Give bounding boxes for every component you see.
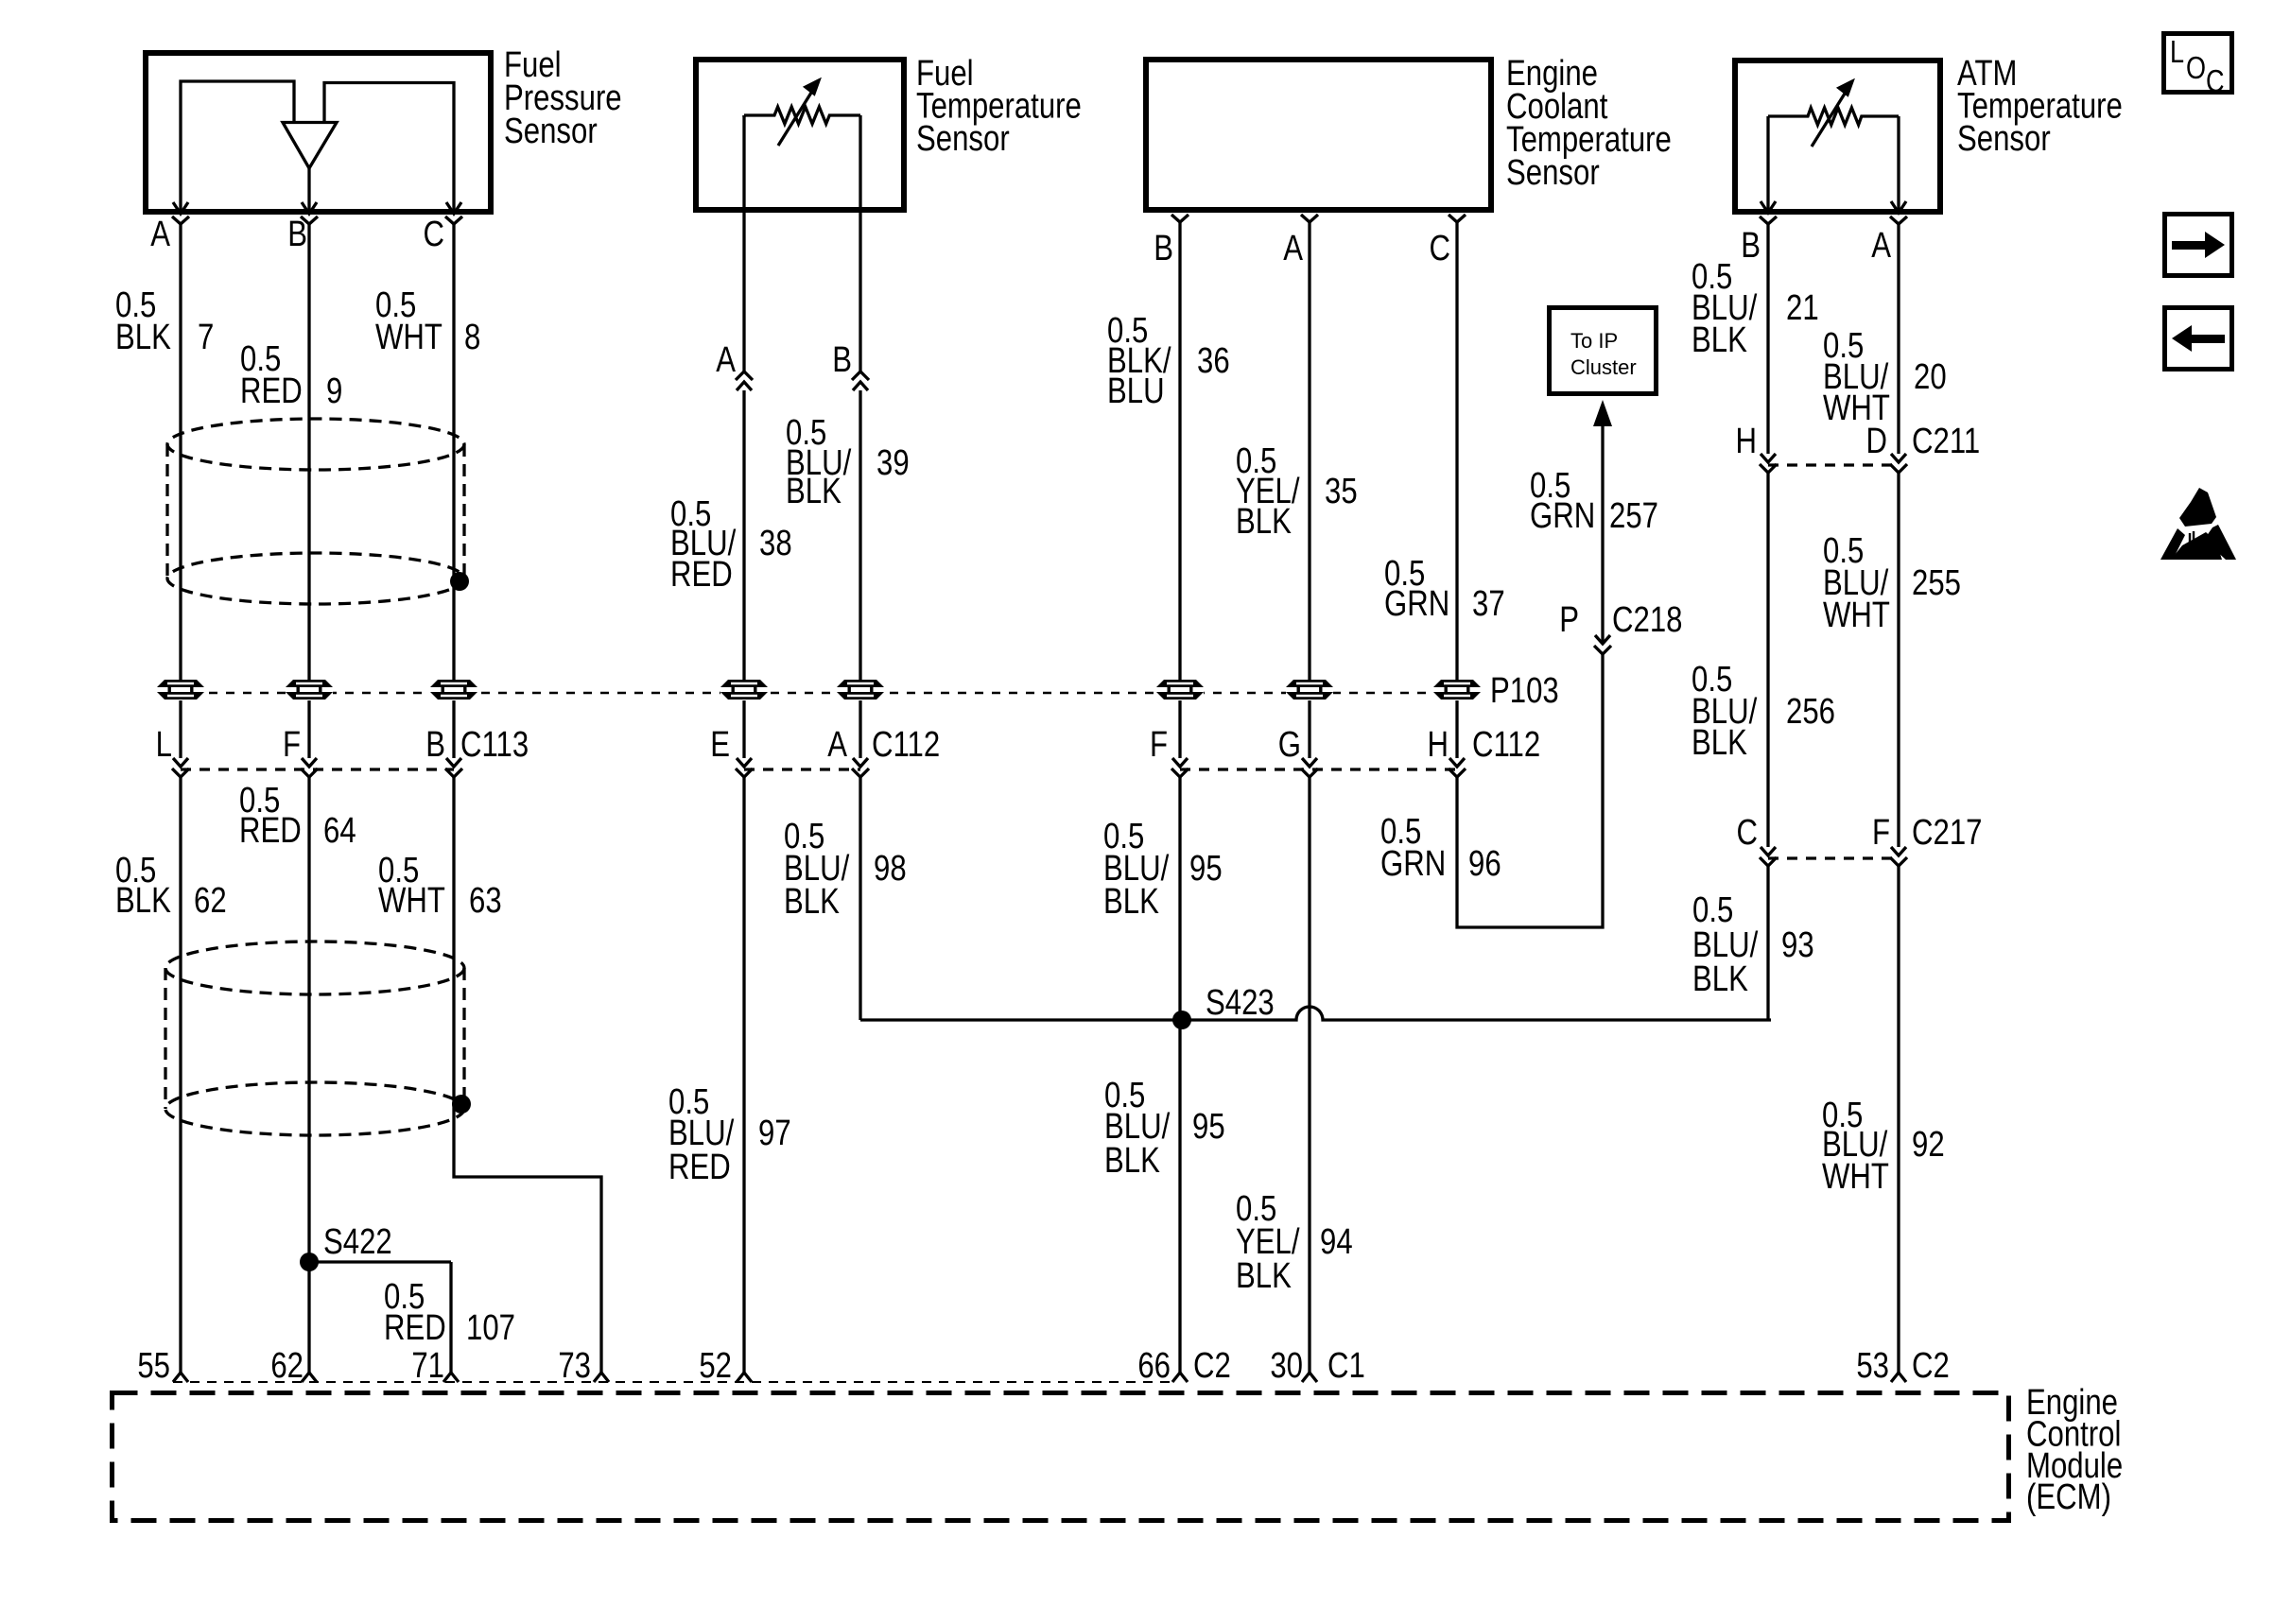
svg-text:Sensor: Sensor xyxy=(504,112,598,151)
svg-text:BLK: BLK xyxy=(1692,723,1747,763)
svg-text:64: 64 xyxy=(323,811,356,851)
svg-text:BLU: BLU xyxy=(1107,371,1165,411)
svg-text:93: 93 xyxy=(1781,925,1814,965)
svg-text:7: 7 xyxy=(198,318,214,357)
svg-text:62: 62 xyxy=(194,881,227,921)
svg-text:D: D xyxy=(1865,422,1887,461)
svg-text:Sensor: Sensor xyxy=(1506,153,1600,193)
svg-text:BLK: BLK xyxy=(1692,959,1748,999)
svg-text:F: F xyxy=(1150,725,1168,765)
svg-text:WHT: WHT xyxy=(375,318,442,357)
svg-text:A: A xyxy=(716,340,737,380)
svg-text:73: 73 xyxy=(558,1346,591,1386)
svg-text:Sensor: Sensor xyxy=(1957,119,2051,159)
svg-text:30: 30 xyxy=(1270,1346,1303,1386)
svg-text:O: O xyxy=(2186,52,2206,86)
svg-text:C: C xyxy=(423,215,444,254)
svg-text:L: L xyxy=(156,725,172,765)
svg-text:62: 62 xyxy=(270,1346,304,1386)
svg-text:A: A xyxy=(1871,226,1892,266)
svg-text:BLK: BLK xyxy=(1236,1256,1292,1296)
svg-text:0.5: 0.5 xyxy=(1692,890,1733,930)
svg-text:RED: RED xyxy=(668,1148,731,1187)
svg-text:9: 9 xyxy=(326,371,342,411)
svg-text:H: H xyxy=(1735,422,1757,461)
svg-text:E: E xyxy=(710,725,730,765)
svg-text:C218: C218 xyxy=(1612,600,1682,640)
svg-text:A: A xyxy=(150,215,171,254)
svg-text:BLK: BLK xyxy=(1692,320,1747,360)
svg-text:55: 55 xyxy=(137,1346,170,1386)
svg-text:36: 36 xyxy=(1197,341,1230,381)
svg-text:256: 256 xyxy=(1786,692,1835,732)
svg-text:B: B xyxy=(832,340,852,380)
svg-text:39: 39 xyxy=(876,443,910,483)
svg-text:63: 63 xyxy=(469,881,502,921)
svg-text:GRN: GRN xyxy=(1380,844,1446,884)
svg-text:95: 95 xyxy=(1192,1107,1225,1147)
svg-text:P: P xyxy=(1559,600,1579,640)
svg-text:71: 71 xyxy=(411,1346,444,1386)
svg-text:107: 107 xyxy=(466,1308,515,1348)
svg-text:S422: S422 xyxy=(323,1222,392,1262)
svg-text:B: B xyxy=(287,215,307,254)
svg-text:94: 94 xyxy=(1320,1222,1353,1262)
svg-text:C2: C2 xyxy=(1912,1346,1950,1386)
svg-text:257: 257 xyxy=(1609,496,1658,536)
svg-text:B: B xyxy=(1154,229,1173,268)
svg-text:8: 8 xyxy=(464,318,480,357)
svg-text:(ECM): (ECM) xyxy=(2026,1477,2111,1517)
svg-text:52: 52 xyxy=(699,1346,732,1386)
svg-text:C: C xyxy=(1736,813,1758,853)
svg-text:B: B xyxy=(425,725,445,765)
svg-text:C112: C112 xyxy=(1472,725,1540,765)
svg-text:BLK: BLK xyxy=(115,881,171,921)
svg-text:RED: RED xyxy=(384,1308,446,1348)
svg-text:RED: RED xyxy=(670,555,733,595)
svg-text:WHT: WHT xyxy=(378,881,445,921)
svg-text:F: F xyxy=(1872,813,1890,853)
svg-text:S423: S423 xyxy=(1206,983,1275,1023)
svg-text:38: 38 xyxy=(759,524,792,563)
svg-text:C211: C211 xyxy=(1912,422,1980,461)
svg-text:BLK: BLK xyxy=(1104,1141,1160,1181)
svg-text:C112: C112 xyxy=(872,725,940,765)
svg-text:RED: RED xyxy=(240,371,303,411)
svg-text:95: 95 xyxy=(1189,849,1223,889)
svg-text:53: 53 xyxy=(1856,1346,1889,1386)
svg-text:A: A xyxy=(827,725,848,765)
svg-text:98: 98 xyxy=(874,849,907,889)
svg-text:B: B xyxy=(1741,226,1761,266)
svg-text:BLK: BLK xyxy=(1103,882,1159,922)
svg-text:66: 66 xyxy=(1137,1346,1171,1386)
svg-text:F: F xyxy=(283,725,301,765)
svg-text:GRN: GRN xyxy=(1384,584,1449,624)
svg-text:C: C xyxy=(1429,229,1450,268)
svg-text:L: L xyxy=(2170,36,2184,70)
svg-text:C113: C113 xyxy=(460,725,529,765)
svg-text:P103: P103 xyxy=(1490,671,1559,711)
svg-text:A: A xyxy=(1283,229,1304,268)
svg-text:BLK: BLK xyxy=(115,318,171,357)
svg-text:BLK: BLK xyxy=(1236,502,1292,542)
svg-text:20: 20 xyxy=(1914,357,1947,397)
svg-text:21: 21 xyxy=(1786,288,1819,328)
svg-text:C: C xyxy=(2206,65,2225,99)
svg-text:C217: C217 xyxy=(1912,813,1982,853)
svg-text:H: H xyxy=(1427,725,1449,765)
svg-text:C1: C1 xyxy=(1327,1346,1365,1386)
svg-text:G: G xyxy=(1278,725,1301,765)
svg-text:WHT: WHT xyxy=(1823,596,1890,635)
svg-text:BLK: BLK xyxy=(784,882,840,922)
svg-text:37: 37 xyxy=(1472,584,1505,624)
svg-text:C2: C2 xyxy=(1193,1346,1231,1386)
svg-text:RED: RED xyxy=(239,811,302,851)
svg-text:Sensor: Sensor xyxy=(916,119,1010,159)
svg-text:92: 92 xyxy=(1912,1125,1945,1165)
svg-text:255: 255 xyxy=(1912,563,1961,603)
svg-text:WHT: WHT xyxy=(1822,1157,1889,1197)
svg-text:To IP: To IP xyxy=(1570,329,1618,353)
svg-text:96: 96 xyxy=(1468,844,1501,884)
svg-text:97: 97 xyxy=(758,1114,791,1153)
svg-text:Cluster: Cluster xyxy=(1570,355,1637,379)
svg-text:35: 35 xyxy=(1325,472,1358,511)
svg-text:BLK: BLK xyxy=(786,472,842,511)
svg-text:GRN: GRN xyxy=(1530,496,1595,536)
